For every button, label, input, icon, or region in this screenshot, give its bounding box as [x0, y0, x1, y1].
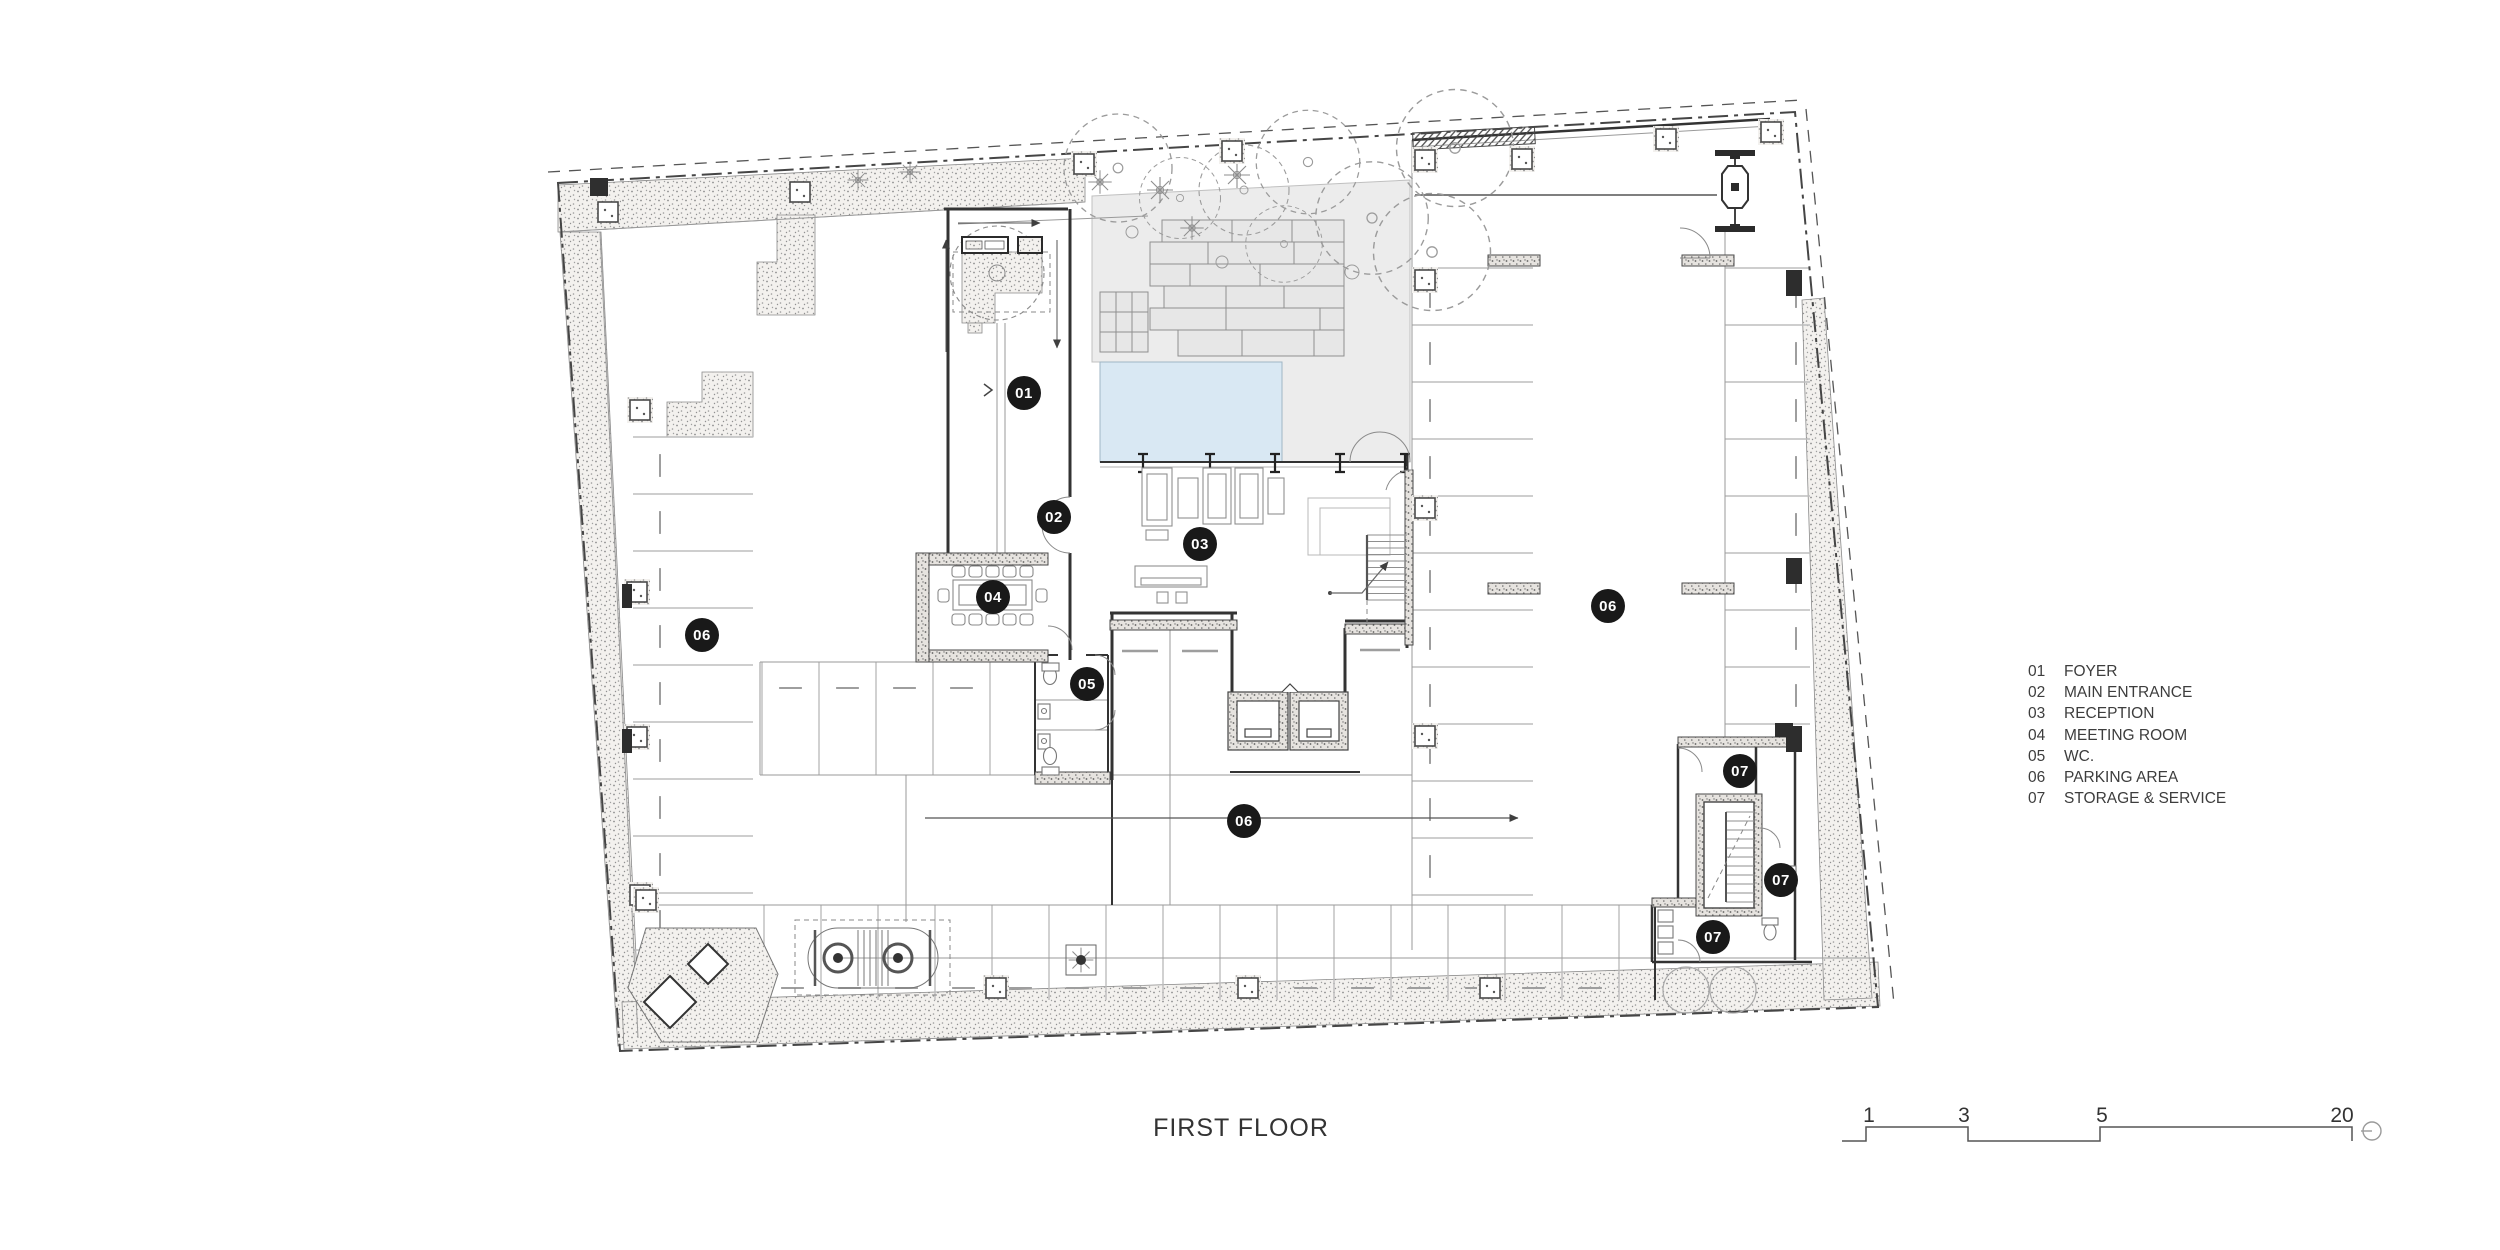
right-parking-stalls-east [1725, 268, 1810, 724]
swimming-pool [1100, 362, 1282, 462]
entrance-benches [962, 237, 1042, 253]
garden-terrace [1092, 180, 1410, 462]
legend-item-main-entrance: 02MAIN ENTRANCE [2028, 682, 2226, 703]
entrance-gate-symbol [1715, 150, 1755, 232]
room-badge-06-5: 06 [685, 618, 719, 652]
floor-plan-sheet: 1 3 5 20 0102030405060606070707 01FOYER … [0, 0, 2500, 1250]
stair-service [1696, 794, 1762, 916]
meter-cabinet [1775, 723, 1793, 737]
floor-drain-fan [1066, 945, 1096, 975]
legend-item-foyer: 01FOYER [2028, 661, 2226, 682]
sheet-title: FIRST FLOOR [1061, 1114, 1421, 1143]
stair-main [1308, 498, 1407, 627]
legend-item-parking-area: 06PARKING AREA [2028, 767, 2226, 788]
legend: 01FOYER 02MAIN ENTRANCE 03RECEPTION 04ME… [2028, 661, 2226, 809]
legend-item-meeting-room: 04MEETING ROOM [2028, 725, 2226, 746]
meter-cabinet [622, 729, 632, 753]
dark-column [590, 178, 608, 196]
room-badge-07-10: 07 [1696, 920, 1730, 954]
scale-label-5: 5 [2096, 1104, 2108, 1127]
scale-end-icon [2361, 1122, 2381, 1140]
entrance-vestibule [946, 223, 1057, 396]
middle-parking-stalls [762, 662, 990, 775]
scale-label-1: 1 [1863, 1104, 1875, 1127]
wc-fixtures [1038, 663, 1059, 775]
left-parking-stalls [633, 437, 753, 950]
room-badge-07-8: 07 [1723, 754, 1757, 788]
meter-cabinet [1786, 270, 1802, 296]
scale-label-20: 20 [2330, 1104, 2353, 1127]
legend-item-reception: 03RECEPTION [2028, 703, 2226, 724]
right-parking-stalls-west [1412, 268, 1533, 895]
scale-bar: 1 3 5 20 [1842, 1104, 2381, 1141]
room-badge-02-1: 02 [1037, 500, 1071, 534]
room-badge-06-7: 06 [1227, 804, 1261, 838]
meter-cabinet [1786, 558, 1802, 584]
scale-label-3: 3 [1958, 1104, 1970, 1127]
legend-item-wc: 05WC. [2028, 746, 2226, 767]
plan-drawing: 1 3 5 20 [0, 0, 2500, 1250]
room-badge-01-0: 01 [1007, 376, 1041, 410]
meter-cabinet [622, 584, 632, 608]
room-badge-05-4: 05 [1070, 667, 1104, 701]
room-badge-03-2: 03 [1183, 527, 1217, 561]
room-badge-06-6: 06 [1591, 589, 1625, 623]
legend-item-storage-service: 07STORAGE & SERVICE [2028, 788, 2226, 809]
room-badge-04-3: 04 [976, 580, 1010, 614]
elevator-shafts [1228, 684, 1348, 750]
room-badge-07-9: 07 [1764, 863, 1798, 897]
